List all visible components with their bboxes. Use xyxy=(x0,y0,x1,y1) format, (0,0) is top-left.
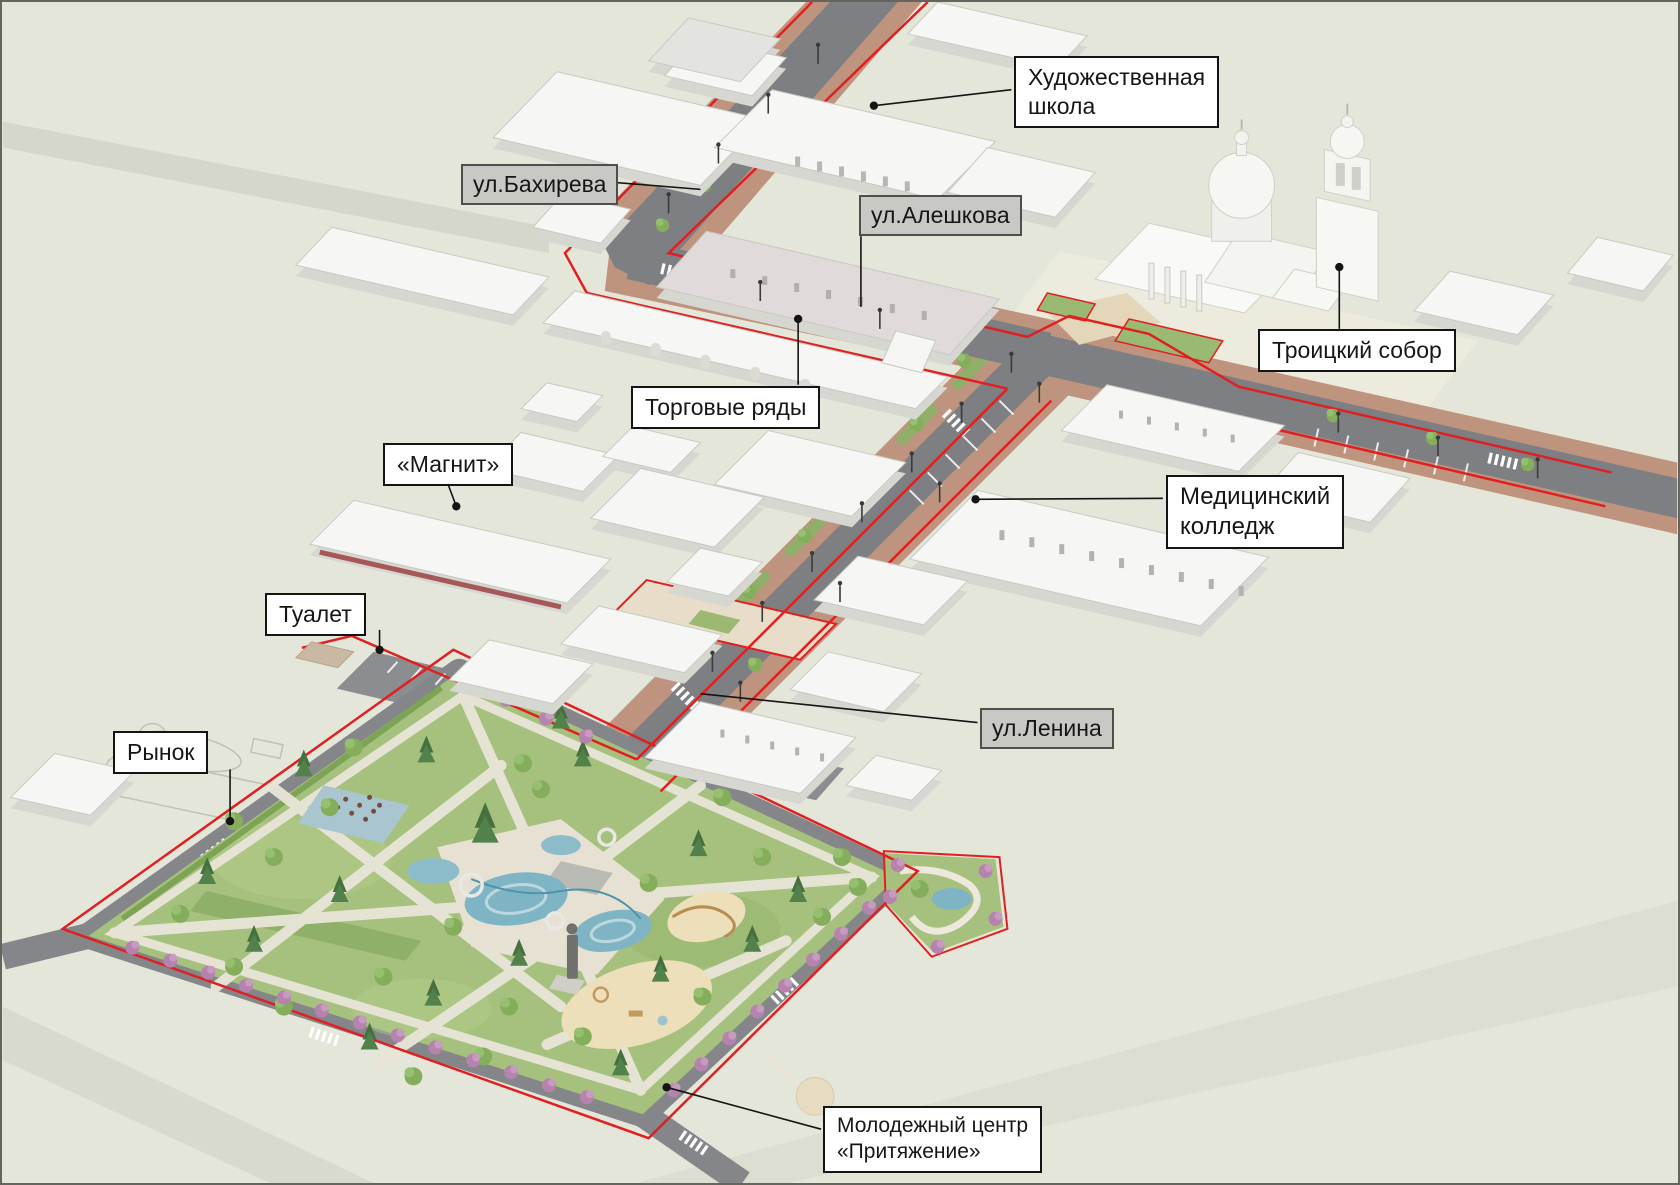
cathedral-dome xyxy=(1209,152,1275,218)
label-toilet: Туалет xyxy=(265,593,366,636)
label-art-school: Художественная школа xyxy=(1014,56,1219,128)
label-lenina-street: ул.Ленина xyxy=(980,708,1114,749)
label-art-school-line2: школа xyxy=(1028,92,1205,121)
label-art-school-line1: Художественная xyxy=(1028,63,1205,92)
label-medical-college: Медицинский колледж xyxy=(1166,475,1344,549)
label-magnit: «Магнит» xyxy=(383,443,513,486)
masterplan-render xyxy=(2,2,1678,1183)
label-aleshkova-street: ул.Алешкова xyxy=(859,195,1022,236)
label-trinity-cathedral: Троицкий собор xyxy=(1258,329,1456,372)
label-youth-center: Молодежный центр «Притяжение» xyxy=(823,1106,1042,1173)
label-trading-rows: Торговые ряды xyxy=(631,386,820,429)
bell-tower xyxy=(1316,197,1378,301)
label-market: Рынок xyxy=(113,731,208,774)
masterplan-map: Художественная школа ул.Бахирева ул.Алеш… xyxy=(0,0,1680,1185)
label-bakhireva-street: ул.Бахирева xyxy=(461,164,618,205)
